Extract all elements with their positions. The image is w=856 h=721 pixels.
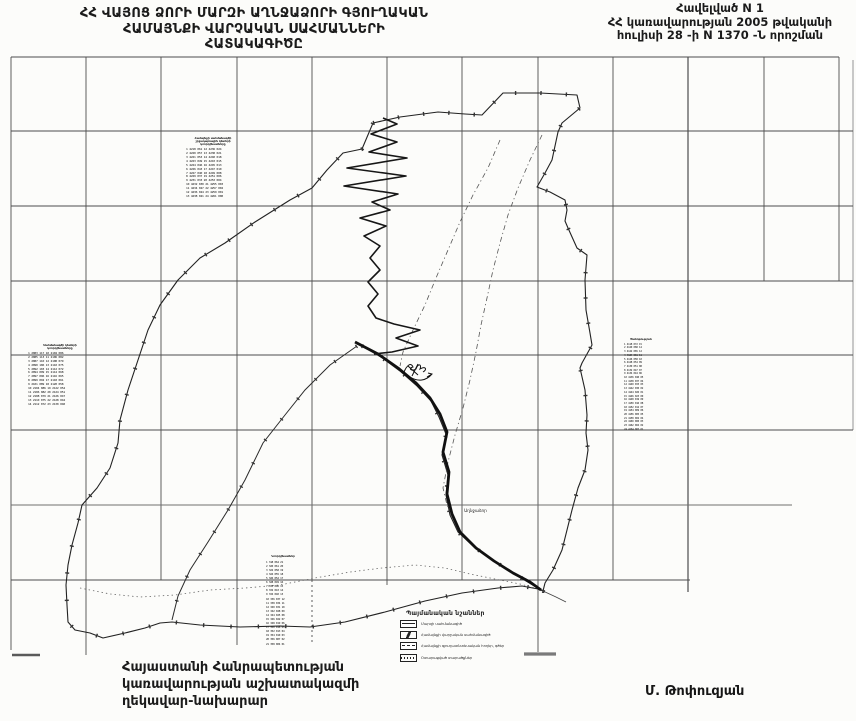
scanned-map-document: ՀՀ ՎԱՅՈՑ ՁՈՐԻ ՄԱՐԶԻ ԱՂՆՋԱՁՈՐԻ ԳՅՈՒՂԱԿԱՆ …	[0, 0, 856, 721]
map-title: ՀՀ ՎԱՅՈՑ ՁՈՐԻ ՄԱՐԶԻ ԱՂՆՋԱՁՈՐԻ ԳՅՈՒՂԱԿԱՆ …	[68, 6, 440, 53]
village-label: Աղնջաձոր	[464, 508, 487, 513]
boundary-tail	[543, 591, 566, 602]
coordinate-table-rows: 1 2083 117 10 2104 086 2 2085 113 11 210…	[28, 352, 92, 407]
coordinate-table-south: Կոորդինատներ 1 318 064 21 2 320 061 20 3…	[266, 555, 300, 646]
legend-item-label: Համայնքի գյուղատնտեսական հողեր, գծեր	[421, 644, 504, 648]
legend-title: Պայմանական նշաններ	[406, 610, 520, 617]
coordinate-table-rows: 1 4118 072 15 2 4120 068 14 3 4122 065 1…	[624, 343, 658, 432]
coordinate-table-header: Ծանոթություն	[624, 338, 658, 341]
coordinate-table-header: Սահմանագծի կետերի կոորդինատները	[28, 344, 92, 350]
signature-name: Մ. Թոփուզյան	[645, 684, 744, 699]
legend-item: Համայնքի գյուղատնտեսական հողեր, գծեր	[400, 642, 520, 650]
legend-item-label: Մարզի սահմանագիծ	[421, 622, 462, 626]
legend-item: Համայնքի վարչական սահմանագիծ	[400, 631, 520, 639]
coordinate-table-rows: 1 318 064 21 2 320 061 20 3 322 058 19 4…	[266, 560, 300, 646]
legend-item-label: Համայնքի վարչական սահմանագիծ	[421, 633, 491, 637]
zigzag-road	[344, 118, 420, 354]
river-thick-line	[355, 342, 541, 590]
admin-border-symbol-icon	[400, 631, 417, 639]
coordinate-table-east: Ծանոթություն 1 4118 072 15 2 4120 068 14…	[624, 338, 658, 432]
coordinate-grid	[11, 57, 853, 655]
interior-dashdot-lines	[400, 135, 542, 515]
alienated-area-symbol-icon	[400, 654, 417, 662]
coordinate-table-header: Համայնքի սահմանագծի շրջադարձային կետերի …	[186, 137, 240, 147]
coordinate-table-header: Կոորդինատներ	[266, 555, 300, 558]
agricultural-land-symbol-icon	[400, 642, 417, 650]
coordinate-table-west: Սահմանագծի կետերի կոորդինատները 1 2083 1…	[28, 344, 92, 407]
coordinate-table-rows: 1 4218 061 12 4236 024 2 4220 057 13 423…	[186, 148, 240, 199]
map-legend: Պայմանական նշաններ Մարզի սահմանագիծ Համա…	[400, 610, 520, 665]
issuer-caption: Հայաստանի Հանրապետության կառավարության ա…	[122, 659, 422, 710]
annex-reference: Հավելված N 1 ՀՀ կառավարության 2005 թվակա…	[586, 2, 854, 43]
coordinate-table-nw: Համայնքի սահմանագծի շրջադարձային կետերի …	[186, 137, 240, 199]
boundary-symbol-icon	[400, 620, 417, 628]
legend-item: Մարզի սահմանագիծ	[400, 620, 520, 628]
legend-item-label: Օտարացված տարածքներ	[421, 656, 472, 660]
legend-item: Օտարացված տարածքներ	[400, 654, 520, 662]
marz-boundary	[172, 346, 357, 620]
